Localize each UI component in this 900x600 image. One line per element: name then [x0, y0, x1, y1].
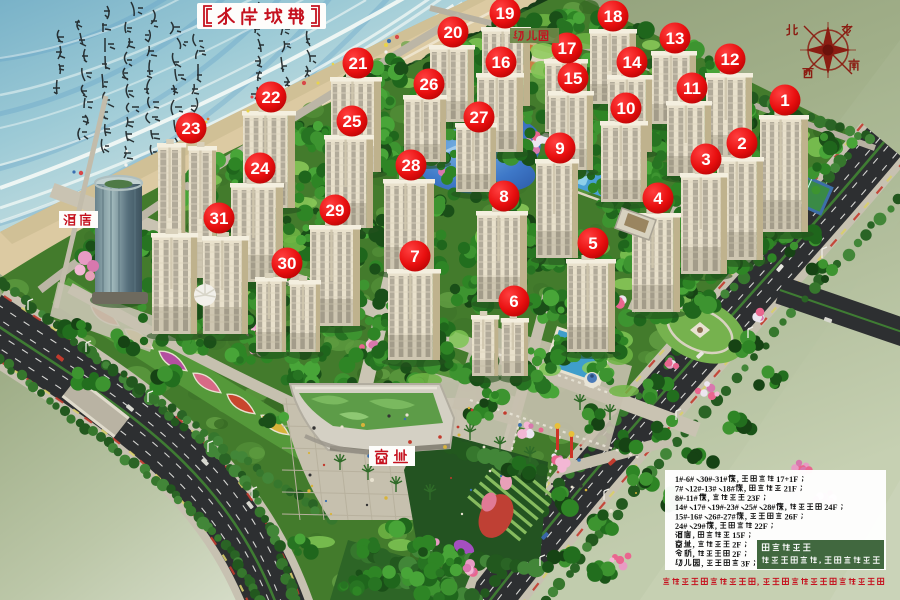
svg-text:3F: 3F [741, 559, 750, 568]
svg-text:29: 29 [326, 201, 345, 220]
svg-text:2F: 2F [732, 550, 741, 559]
svg-text:17+1F: 17+1F [776, 475, 798, 484]
svg-text:31: 31 [210, 209, 229, 228]
svg-text:20: 20 [444, 23, 463, 42]
svg-text:23: 23 [182, 119, 201, 138]
svg-text:,: , [701, 559, 703, 568]
svg-text:3: 3 [701, 150, 710, 169]
svg-text:17#: 17# [693, 503, 705, 512]
svg-text:22: 22 [262, 88, 281, 107]
svg-text:24F: 24F [824, 503, 837, 512]
svg-text:17: 17 [558, 39, 577, 58]
svg-text:28#: 28# [763, 503, 775, 512]
svg-text:8#-11#: 8#-11# [675, 494, 698, 503]
svg-text:16: 16 [492, 53, 511, 72]
svg-text:7: 7 [410, 247, 419, 266]
svg-text:28: 28 [402, 156, 421, 175]
svg-text:,: , [737, 475, 739, 484]
svg-text:13: 13 [666, 29, 685, 48]
svg-text:30#-31#: 30#-31# [700, 475, 727, 484]
svg-text:22F: 22F [755, 522, 768, 531]
svg-text:26F: 26F [785, 513, 798, 522]
svg-text:,: , [715, 522, 717, 531]
svg-text:4: 4 [653, 189, 663, 208]
svg-text:9: 9 [555, 139, 564, 158]
svg-text:19#-23#: 19#-23# [712, 503, 739, 512]
svg-text:21F: 21F [784, 485, 797, 494]
svg-text:21: 21 [349, 54, 368, 73]
svg-text:12#-13#: 12#-13# [689, 485, 716, 494]
svg-text:2: 2 [737, 134, 746, 153]
svg-text:5: 5 [588, 234, 597, 253]
svg-text:24: 24 [251, 159, 270, 178]
svg-text:27: 27 [470, 108, 489, 127]
svg-text:,: , [708, 494, 710, 503]
svg-text:15F: 15F [732, 531, 745, 540]
svg-text:,: , [819, 555, 821, 565]
svg-text:26: 26 [420, 75, 439, 94]
svg-text:26#-27#: 26#-27# [708, 513, 735, 522]
svg-text:14: 14 [623, 53, 642, 72]
svg-text:25: 25 [343, 112, 362, 131]
svg-text:2F: 2F [732, 541, 741, 550]
svg-text:18#: 18# [723, 485, 735, 494]
svg-text:,: , [757, 577, 759, 587]
svg-text:,: , [744, 485, 746, 494]
svg-text:1#-6#: 1#-6# [675, 475, 694, 484]
svg-text:,: , [693, 541, 695, 550]
svg-text:24#: 24# [675, 522, 687, 531]
svg-text:7#: 7# [675, 485, 683, 494]
svg-text:14#: 14# [675, 503, 687, 512]
svg-text:18: 18 [604, 7, 623, 26]
svg-text:,: , [745, 513, 747, 522]
svg-text:8: 8 [499, 187, 508, 206]
svg-text:29#: 29# [693, 522, 705, 531]
svg-text:12: 12 [721, 50, 740, 69]
svg-text:11: 11 [683, 79, 701, 98]
svg-text:25#: 25# [745, 503, 757, 512]
svg-text:,: , [693, 531, 695, 540]
svg-text:10: 10 [617, 99, 636, 118]
svg-text:15#-16#: 15#-16# [675, 513, 702, 522]
svg-text:30: 30 [278, 254, 297, 273]
svg-text:,: , [693, 550, 695, 559]
svg-text:,: , [785, 503, 787, 512]
svg-text:1: 1 [780, 91, 789, 110]
svg-text:15: 15 [564, 69, 583, 88]
svg-text:19: 19 [496, 4, 515, 23]
svg-text:6: 6 [509, 292, 518, 311]
svg-text:23F: 23F [747, 494, 760, 503]
